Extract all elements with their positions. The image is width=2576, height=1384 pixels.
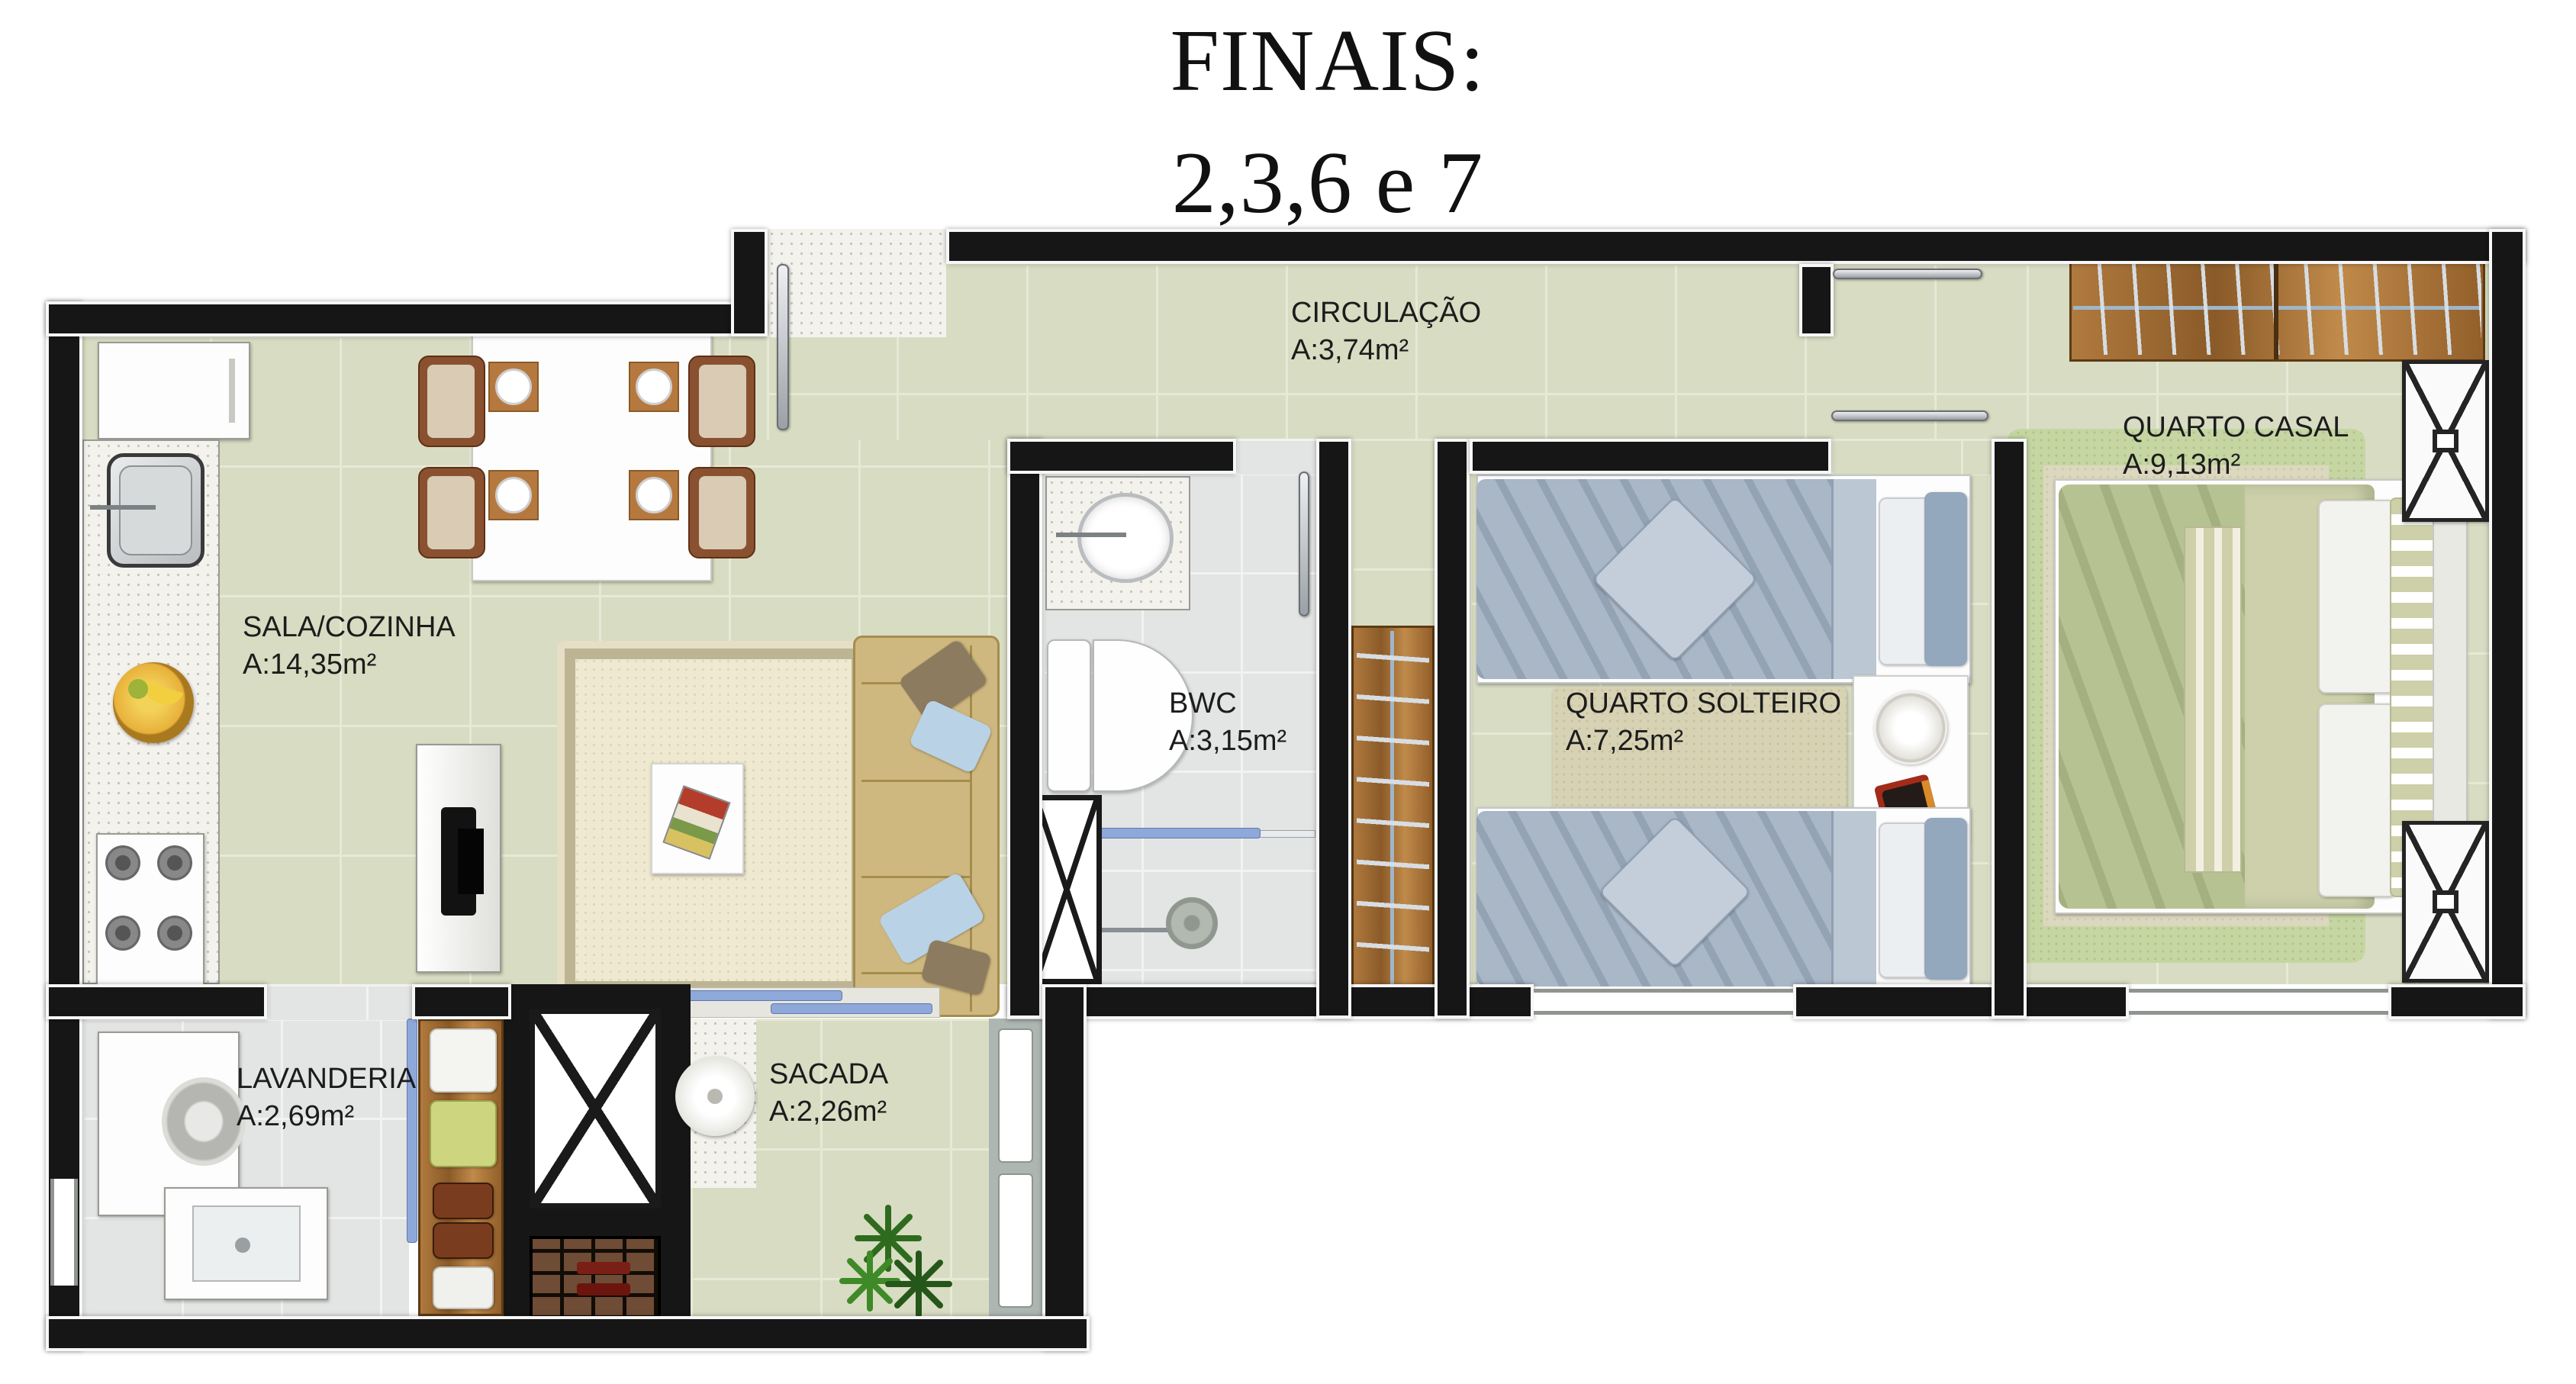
place-setting-3	[488, 470, 539, 520]
wall-laundry-top-a	[46, 984, 267, 1019]
laundry-tank-drain	[235, 1238, 250, 1253]
fruit-bowl	[113, 662, 194, 743]
bwc-door-leaf	[1299, 472, 1309, 616]
couple-bed-pillow-2	[2318, 703, 2396, 897]
wall-outer-bottom	[46, 1316, 1090, 1351]
balcony-railing-panel-2	[998, 1173, 1033, 1308]
stove-burner-1	[105, 845, 140, 880]
laundry-shelf	[418, 1019, 504, 1316]
room-label-lavanderia: LAVANDERIA A:2,69m²	[237, 1061, 416, 1135]
shelf-shoes-2	[433, 1222, 494, 1259]
shelf-basket	[430, 1100, 497, 1167]
plan-title-line1: FINAIS:	[1022, 0, 1633, 122]
room-name-lavanderia: LAVANDERIA	[237, 1061, 416, 1098]
window-couple-bedroom	[2129, 989, 2388, 1015]
entry-threshold	[767, 229, 946, 337]
room-label-circulacao: CIRCULAÇÃO A:3,74m²	[1291, 295, 1481, 369]
bwc-sink	[1077, 493, 1174, 583]
single-bedroom-door-leaf	[1831, 410, 1988, 421]
sofa-seat-line-1	[861, 780, 972, 782]
room-name-circulacao: CIRCULAÇÃO	[1291, 295, 1481, 332]
floor-hall-niche	[1351, 439, 1435, 628]
wall-single-left	[1435, 439, 1470, 1019]
room-label-casal: QUARTO CASAL A:9,13m²	[2123, 409, 2349, 484]
entry-door-leaf	[777, 264, 789, 430]
balcony-sliding-door-pane-2	[771, 1003, 932, 1014]
room-name-sacada: SACADA	[769, 1056, 888, 1093]
floorplan-page: FINAIS: 2,3,6 e 7	[0, 0, 2576, 1384]
washing-machine-drum	[162, 1077, 246, 1166]
wall-bwc-right	[1316, 439, 1351, 1019]
barbecue-meat-1	[577, 1262, 630, 1274]
shower-glass-pane	[1085, 828, 1261, 838]
wall-kitchen-top	[46, 301, 767, 336]
floor-laundry-door-gap	[267, 984, 412, 1020]
elevator-shaft	[530, 1009, 661, 1209]
wall-couple-left	[1992, 439, 2027, 1019]
dining-chair-3	[688, 356, 755, 447]
window-single-bedroom	[1534, 989, 1793, 1015]
couple-bed-pillow-1	[2318, 500, 2396, 694]
floor-bathroom-door-gap	[1236, 439, 1316, 475]
hall-wardrobe	[1351, 626, 1435, 992]
fruit-green	[128, 679, 148, 699]
fridge	[98, 342, 250, 439]
plan-title-line2: 2,3,6 e 7	[1022, 122, 1633, 244]
hall-wardrobe-hangers	[1357, 632, 1429, 983]
wall-single-top	[1470, 439, 1831, 474]
wall-entry-jamb	[731, 229, 768, 336]
room-area-circulacao: A:3,74m²	[1291, 332, 1481, 369]
room-area-casal: A:9,13m²	[2123, 446, 2349, 484]
couple-nightstand-top	[2402, 360, 2489, 522]
balcony-table-center	[707, 1089, 723, 1104]
shelf-towels	[430, 1028, 497, 1093]
stove-burner-3	[105, 916, 140, 951]
wall-laundry-top-b	[412, 984, 511, 1019]
wall-couple-door-stub	[1799, 264, 1834, 336]
room-area-sacada: A:2,26m²	[769, 1093, 888, 1131]
room-name-bwc: BWC	[1169, 685, 1286, 723]
stove-burner-2	[157, 845, 192, 880]
barbecue-grill	[530, 1236, 661, 1318]
single-bed-top-sheet	[1831, 479, 1876, 679]
room-area-bwc: A:3,15m²	[1169, 723, 1286, 760]
place-setting-1	[488, 362, 539, 412]
room-label-solteiro: QUARTO SOLTEIRO A:7,25m²	[1566, 685, 1841, 760]
wall-bottom-main-c	[2388, 984, 2526, 1019]
wall-bwc-top	[1007, 439, 1236, 474]
shelf-slippers	[433, 1267, 494, 1309]
wall-outer-right	[2489, 229, 2526, 1019]
single-nightstand-lamp	[1874, 691, 1947, 764]
stove-burner-4	[157, 916, 192, 951]
couple-bedroom-door-leaf	[1833, 269, 1982, 279]
room-label-sala: SALA/COZINHA A:14,35m²	[243, 609, 456, 684]
couple-wardrobe-divider	[2274, 260, 2278, 359]
couple-wardrobe	[2069, 258, 2485, 362]
dining-chair-4	[688, 467, 755, 558]
plan-title: FINAIS: 2,3,6 e 7	[1022, 0, 1633, 244]
place-setting-2	[629, 362, 679, 412]
shelf-shoes-1	[433, 1183, 494, 1219]
single-bed-bottom-sheet	[1831, 811, 1876, 987]
place-setting-4	[629, 470, 679, 520]
window-laundry	[50, 1179, 78, 1286]
wall-bottom-main-b	[1793, 984, 2129, 1019]
room-name-solteiro: QUARTO SOLTEIRO	[1566, 685, 1841, 723]
fridge-handle	[229, 359, 235, 423]
room-area-sala: A:14,35m²	[243, 646, 456, 684]
room-area-lavanderia: A:2,69m²	[237, 1098, 416, 1135]
shower-drain	[1166, 897, 1218, 949]
couple-bed-runner	[2184, 526, 2242, 873]
wall-outer-top	[946, 229, 2526, 264]
wall-balcony-right	[1042, 984, 1087, 1350]
room-area-solteiro: A:7,25m²	[1566, 723, 1841, 760]
room-name-casal: QUARTO CASAL	[2123, 409, 2349, 446]
dining-chair-1	[418, 356, 485, 447]
room-label-sacada: SACADA A:2,26m²	[769, 1056, 888, 1131]
room-label-bwc: BWC A:3,15m²	[1169, 685, 1286, 760]
couple-nightstand-bottom	[2402, 821, 2489, 983]
bwc-faucet	[1056, 533, 1126, 537]
kitchen-sink-basin	[119, 465, 192, 555]
toilet-tank	[1047, 639, 1091, 792]
floor-bedroom-single-door-gap	[1831, 439, 1992, 475]
tv-base	[458, 829, 484, 894]
balcony-sliding-door-pane-1	[681, 990, 842, 1001]
balcony-railing-panel-1	[998, 1028, 1033, 1163]
wall-bwc-left	[1007, 439, 1042, 1019]
single-bed-bottom-pillow-blue	[1924, 818, 1967, 980]
dining-chair-2	[418, 467, 485, 558]
kitchen-faucet	[90, 505, 156, 510]
single-bed-top-pillow-blue	[1924, 492, 1967, 666]
barbecue-meat-2	[577, 1283, 630, 1295]
room-name-sala: SALA/COZINHA	[243, 609, 456, 646]
